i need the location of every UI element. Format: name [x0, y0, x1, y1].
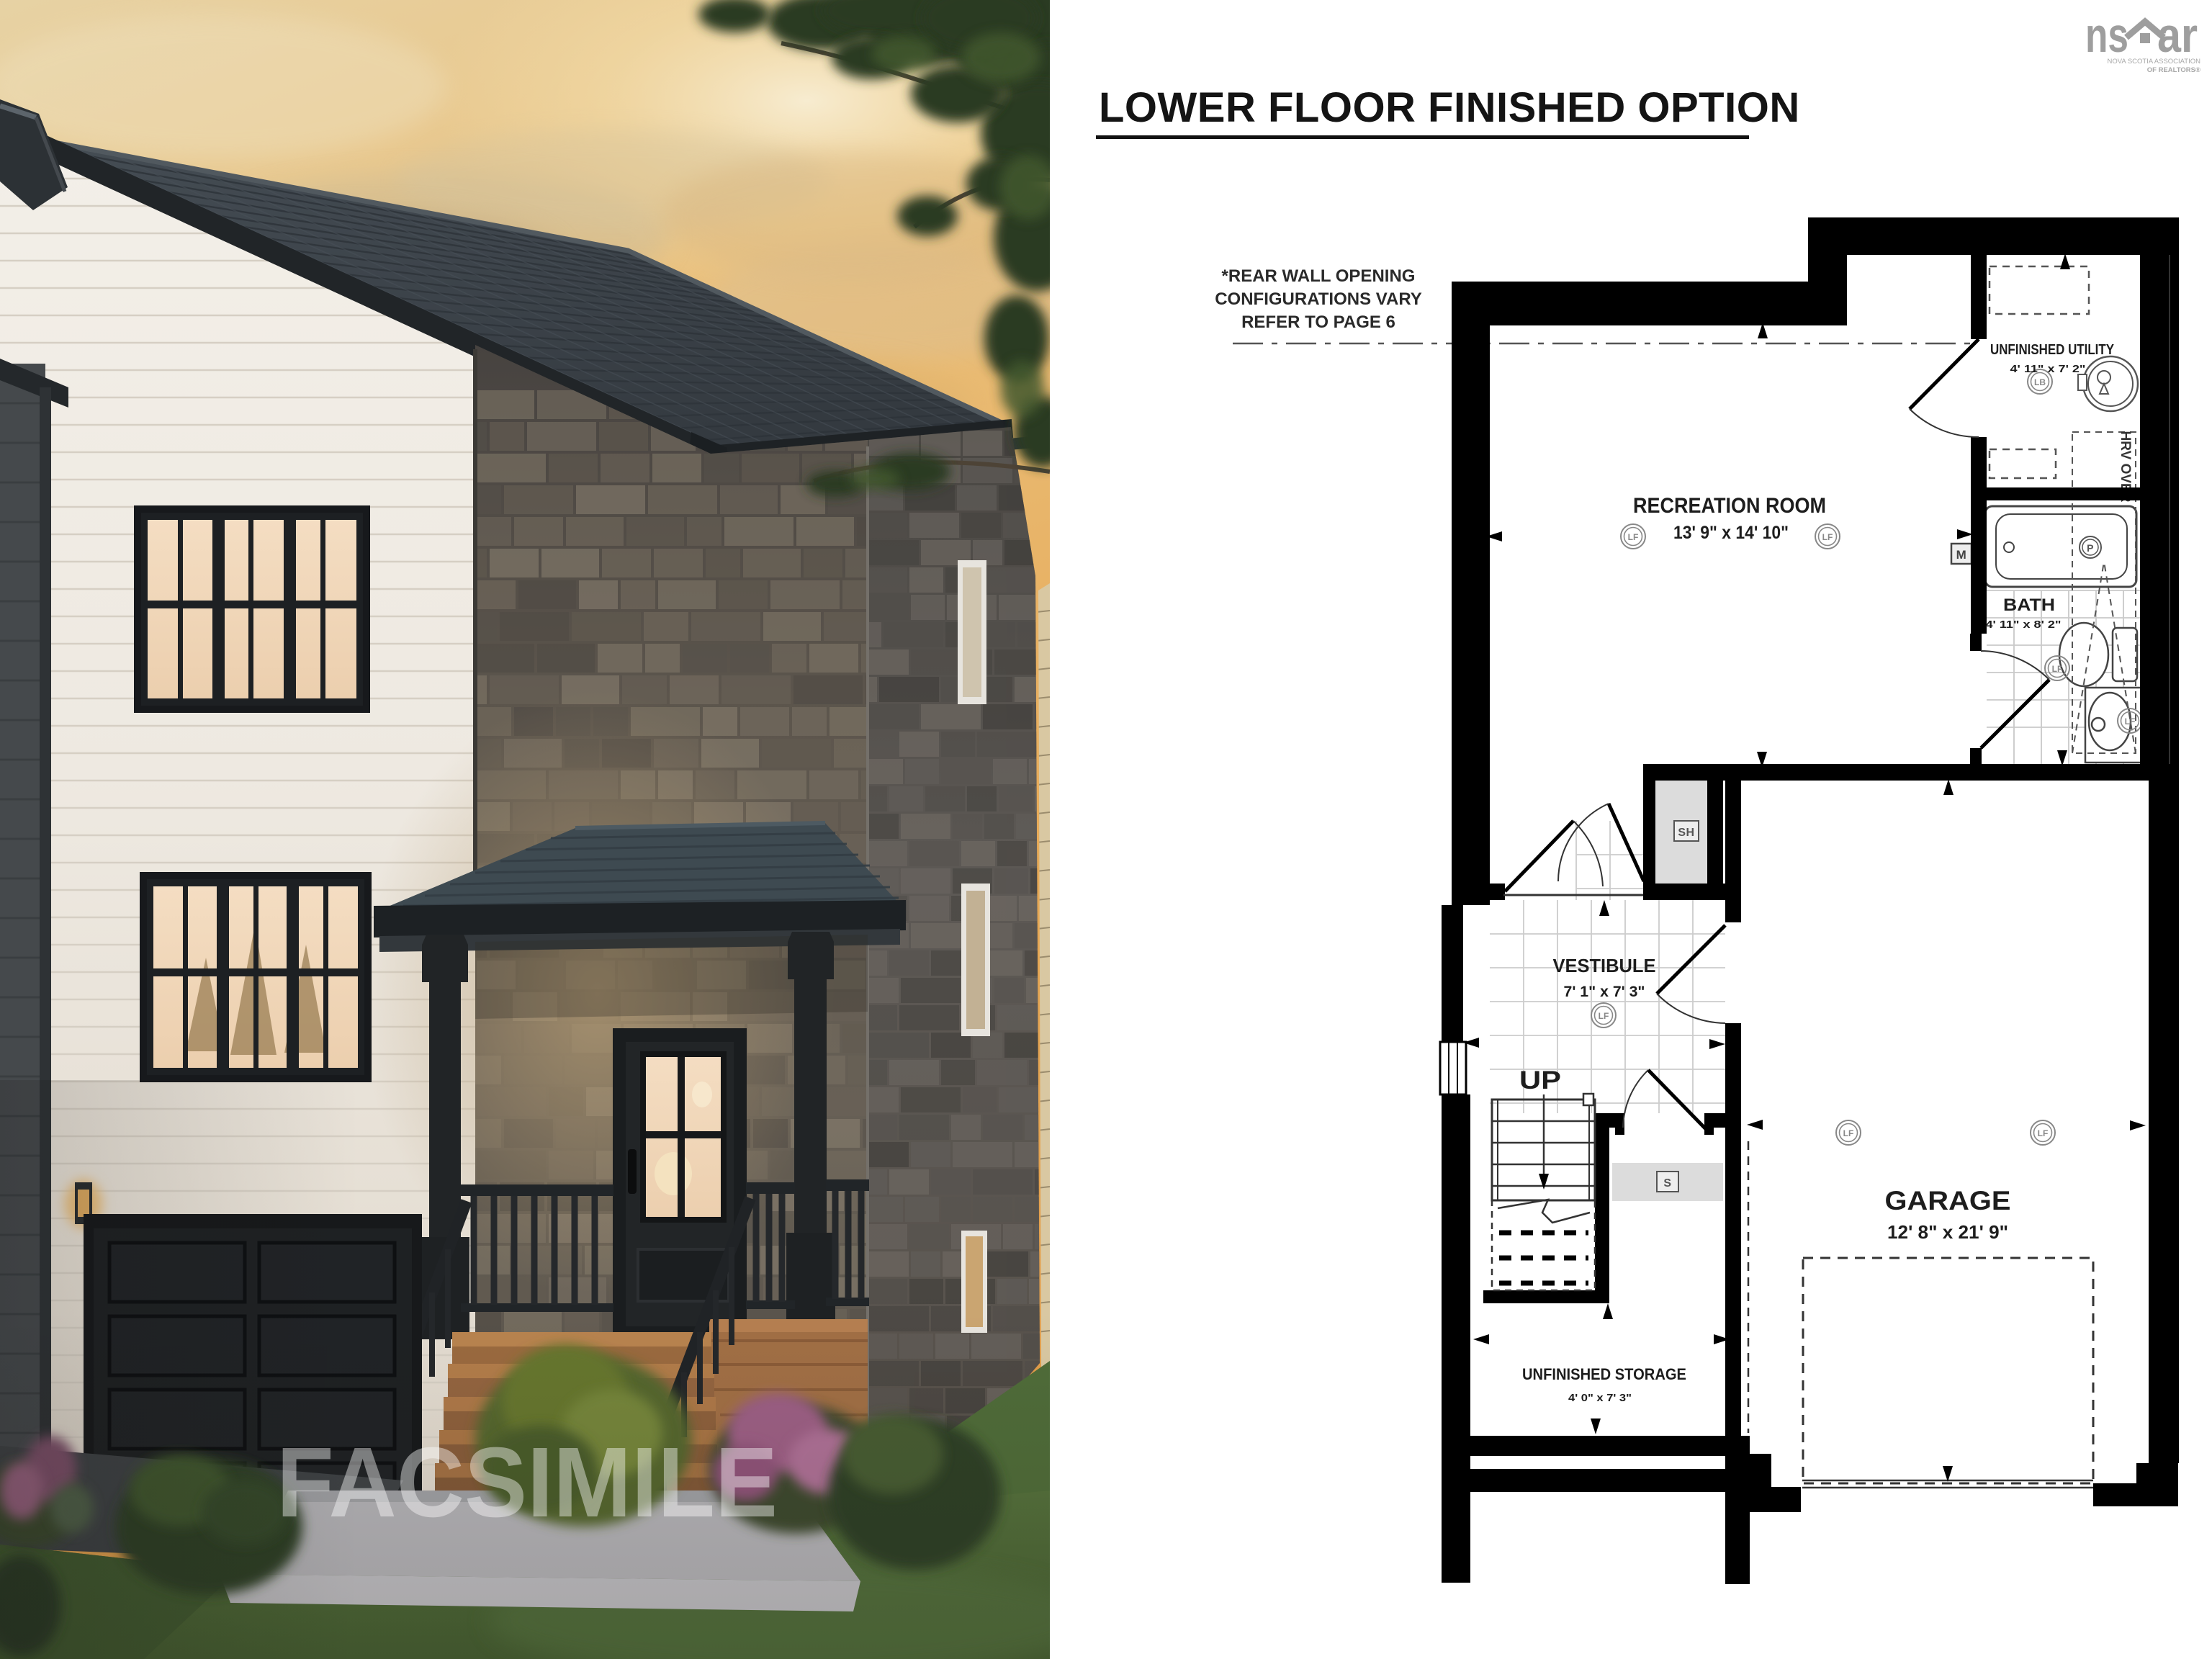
svg-text:LF: LF	[1843, 1128, 1854, 1138]
svg-text:LF: LF	[2052, 664, 2063, 674]
svg-text:VESTIBULE: VESTIBULE	[1553, 955, 1656, 976]
svg-text:LF: LF	[2038, 1128, 2049, 1138]
svg-text:RECREATION ROOM: RECREATION ROOM	[1633, 494, 1826, 518]
svg-text:FACSIMILE: FACSIMILE	[276, 1427, 778, 1538]
svg-text:M: M	[1956, 548, 1967, 562]
svg-text:GARAGE: GARAGE	[1885, 1186, 2011, 1215]
svg-text:12' 8" x 21' 9": 12' 8" x 21' 9"	[1887, 1221, 2008, 1243]
svg-text:LB: LB	[2034, 377, 2046, 387]
svg-text:UP: UP	[1519, 1066, 1561, 1094]
svg-text:4' 11" x 7' 2": 4' 11" x 7' 2"	[2010, 363, 2086, 375]
svg-text:UNFINISHED UTILITY: UNFINISHED UTILITY	[1990, 342, 2115, 358]
svg-text:LF: LF	[1599, 1011, 1609, 1021]
svg-text:S: S	[1663, 1177, 1671, 1190]
svg-text:LF: LF	[1628, 532, 1639, 542]
svg-text:4' 11" x 8' 2": 4' 11" x 8' 2"	[1986, 619, 2062, 631]
svg-text:13' 9" x 14' 10": 13' 9" x 14' 10"	[1673, 523, 1789, 543]
svg-text:P: P	[2087, 542, 2094, 554]
svg-text:7' 1" x 7' 3": 7' 1" x 7' 3"	[1564, 984, 1645, 1000]
svg-text:4' 0" x 7' 3": 4' 0" x 7' 3"	[1568, 1392, 1632, 1404]
svg-text:SH: SH	[1678, 827, 1694, 839]
svg-text:LF: LF	[1822, 532, 1833, 542]
svg-text:LF: LF	[2125, 716, 2136, 727]
svg-text:UNFINISHED STORAGE: UNFINISHED STORAGE	[1522, 1365, 1686, 1383]
svg-text:BATH: BATH	[2003, 595, 2055, 615]
